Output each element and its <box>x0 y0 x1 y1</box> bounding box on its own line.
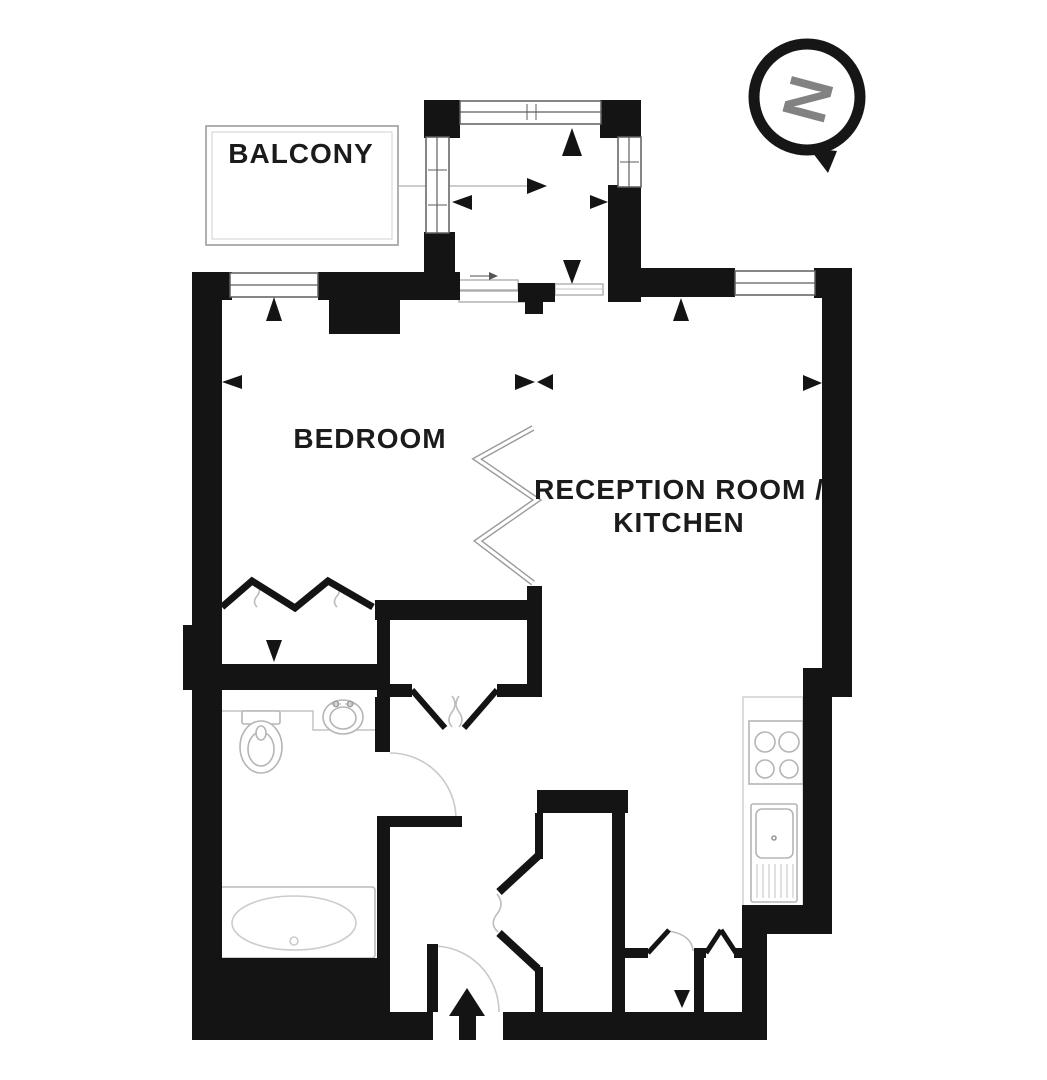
bay-window-left <box>426 137 449 233</box>
toilet-icon <box>240 711 282 773</box>
cupboard-wall-right <box>612 813 625 1012</box>
bifold-squiggle <box>456 696 462 727</box>
bay-corner-se <box>608 185 641 302</box>
arrow-up-bedroom <box>266 297 282 321</box>
room-labels: BALCONY BEDROOM RECEPTION ROOM / KITCHEN <box>228 138 824 538</box>
bedroom-label: BEDROOM <box>293 423 446 454</box>
hall-wall-top <box>537 790 628 813</box>
hob-icon <box>749 721 803 784</box>
bay-window-right <box>618 137 641 187</box>
floor-plan: BALCONY BEDROOM RECEPTION ROOM / KITCHEN… <box>0 0 1047 1080</box>
kitchen-sink-icon <box>751 804 797 902</box>
arrow-right-bay2 <box>590 195 608 209</box>
entry-door-leaf <box>427 944 438 1012</box>
bay-corner-nw <box>424 100 460 138</box>
cupboard-squiggle <box>493 894 501 932</box>
arrow-right-bay <box>527 178 547 194</box>
wall-bathroom-south <box>192 958 388 1014</box>
closet-door-arc <box>669 931 693 951</box>
closet-wall-right <box>527 586 542 697</box>
wall-top-mid <box>318 272 460 300</box>
arrow-bowtie-left <box>515 374 535 390</box>
bay-sill-tab <box>525 302 543 314</box>
wall-bathroom-east-upper <box>375 697 390 752</box>
closet-wall-top <box>375 600 542 620</box>
wall-pillar <box>329 298 400 334</box>
wardrobe-doors <box>222 581 373 608</box>
reception-window <box>735 271 815 295</box>
arrow-down-closet <box>674 990 690 1008</box>
bathroom-door-arc <box>390 753 456 819</box>
wall-bathroom-north <box>192 664 390 690</box>
entrance-arrow <box>449 988 485 1040</box>
arrow-right-reception <box>803 375 822 391</box>
wall-top-right <box>641 268 735 297</box>
washbasin-icon <box>323 700 363 734</box>
arrow-left-bay <box>452 195 472 210</box>
closet-b-door <box>648 930 669 953</box>
closet-bifold-right <box>464 690 497 728</box>
wall-right-lower <box>803 668 832 932</box>
bay-corner-ne <box>600 100 641 138</box>
closet-b-door <box>721 930 736 953</box>
thin-lines <box>206 126 803 1012</box>
arrow-up-bay <box>562 128 582 156</box>
floor-plan-drawing: BALCONY BEDROOM RECEPTION ROOM / KITCHEN… <box>0 0 1047 1080</box>
reception-label-line1: RECEPTION ROOM / <box>534 474 824 505</box>
hall-diagonal-wall <box>499 856 538 892</box>
closet-b-divider <box>694 955 704 1012</box>
wall-se-vertical <box>742 905 767 1015</box>
wall-right <box>822 268 852 697</box>
bay-sill-block <box>518 283 555 302</box>
arrow-down-bathroom <box>266 640 282 662</box>
bathroom-door-leaf <box>388 816 462 827</box>
arrow-up-reception <box>673 298 689 321</box>
bay-corner-sw <box>424 232 455 274</box>
fixtures <box>217 700 803 958</box>
hall-diagonal-wall <box>499 933 538 969</box>
closet-b-stub1 <box>625 948 648 958</box>
hall-wall-upper <box>535 813 543 859</box>
wall-bottom-right <box>503 1012 767 1040</box>
folding-door <box>477 428 537 583</box>
bay-window-top <box>460 101 601 124</box>
closet-stub-right <box>497 684 527 697</box>
wall-top-left <box>192 272 232 300</box>
compass-pointer <box>809 148 837 173</box>
slide-direction-arrow <box>489 272 498 280</box>
arrow-left-bedroom <box>222 375 242 389</box>
closet-bifold-left <box>412 690 445 728</box>
reception-label-line2: KITCHEN <box>613 507 744 538</box>
closet-stub-left <box>390 684 412 697</box>
closet-b-door <box>706 930 721 953</box>
bathtub-icon <box>217 887 375 958</box>
drainer-lines <box>757 864 793 898</box>
arrow-down-bay <box>563 260 581 284</box>
bedroom-window <box>230 273 318 297</box>
balcony-label: BALCONY <box>228 138 373 169</box>
closet-wall-left <box>377 620 390 697</box>
arrow-bowtie-right <box>537 374 553 390</box>
north-compass: N <box>754 44 860 173</box>
wall-bottom-left <box>192 1012 433 1040</box>
bifold-squiggle <box>449 696 455 727</box>
hall-wall-lower <box>535 967 543 1012</box>
windows <box>230 101 815 297</box>
